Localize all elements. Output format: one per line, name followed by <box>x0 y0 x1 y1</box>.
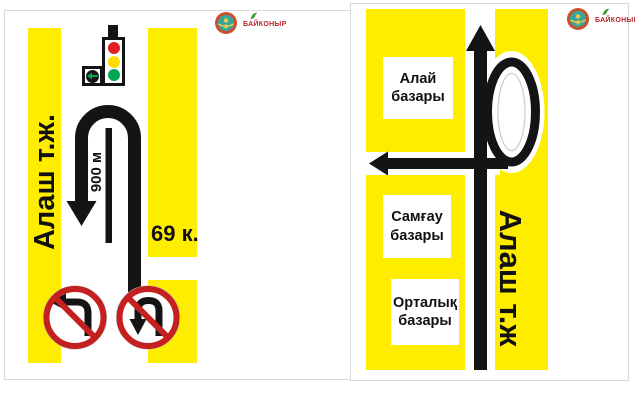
market-name-line2: базары <box>391 88 445 106</box>
market-box-alay: Алай базары <box>383 57 453 119</box>
traffic-light-icon <box>82 25 127 87</box>
market-box-samgau: Самғау базары <box>383 195 451 258</box>
document-page: Алаш т.ж. 900 м 69 к. Алай базары Самғау… <box>0 0 635 402</box>
no-u-turn-icon <box>116 286 179 349</box>
baikonur-logo-right: БАЙКОНЫР <box>566 7 635 33</box>
u-turn-route-arrow <box>67 112 135 293</box>
street-name-left: Алаш т.ж. <box>28 97 62 267</box>
street-name-right: Алаш т.ж <box>492 198 528 358</box>
traffic-light-body <box>102 37 125 86</box>
market-name-line1: Самғау <box>391 208 443 226</box>
distance-label: 900 м <box>88 149 104 195</box>
baikonur-wordmark: БАЙКОНЫР <box>243 21 287 28</box>
market-name-line2: базары <box>390 227 444 245</box>
market-name-line2: базары <box>398 312 452 330</box>
bird-icon <box>602 8 610 16</box>
green-light <box>108 69 120 81</box>
market-name-line1: Алай <box>400 70 437 88</box>
baikonur-emblem-icon <box>566 7 590 31</box>
market-box-ortalyk: Орталық базары <box>391 279 459 345</box>
traffic-light-left-signal <box>82 66 103 86</box>
red-light <box>108 42 120 54</box>
bird-icon <box>250 12 258 20</box>
market-name-line1: Орталық <box>393 294 457 312</box>
no-left-turn-icon <box>43 286 106 349</box>
baikonur-logo-left: БАЙКОНЫР <box>214 11 289 37</box>
building-label: 69 к. <box>151 221 199 247</box>
road-median-line <box>106 128 113 243</box>
green-left-arrow-icon <box>86 70 99 83</box>
baikonur-emblem-icon <box>214 11 238 35</box>
baikonur-wordmark: БАЙКОНЫР <box>595 17 635 24</box>
left-exit-arrow <box>369 152 508 176</box>
amber-light <box>108 56 120 68</box>
